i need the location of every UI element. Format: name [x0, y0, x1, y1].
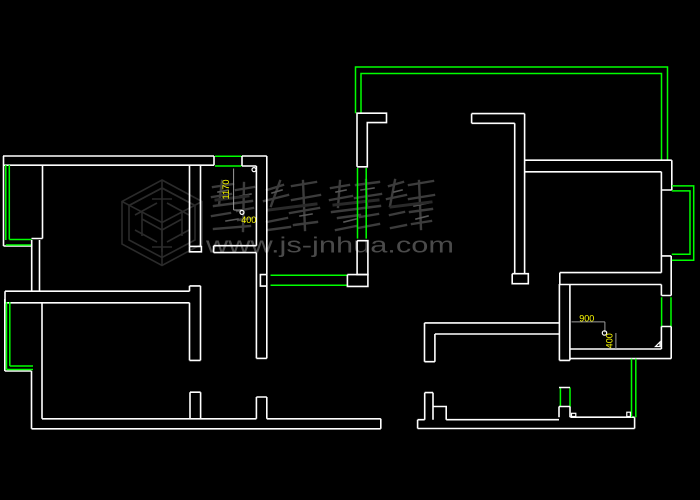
svg-text:400: 400	[241, 215, 256, 225]
svg-text:400: 400	[605, 333, 615, 348]
svg-text:900: 900	[579, 314, 594, 324]
svg-text:1170: 1170	[221, 180, 231, 200]
